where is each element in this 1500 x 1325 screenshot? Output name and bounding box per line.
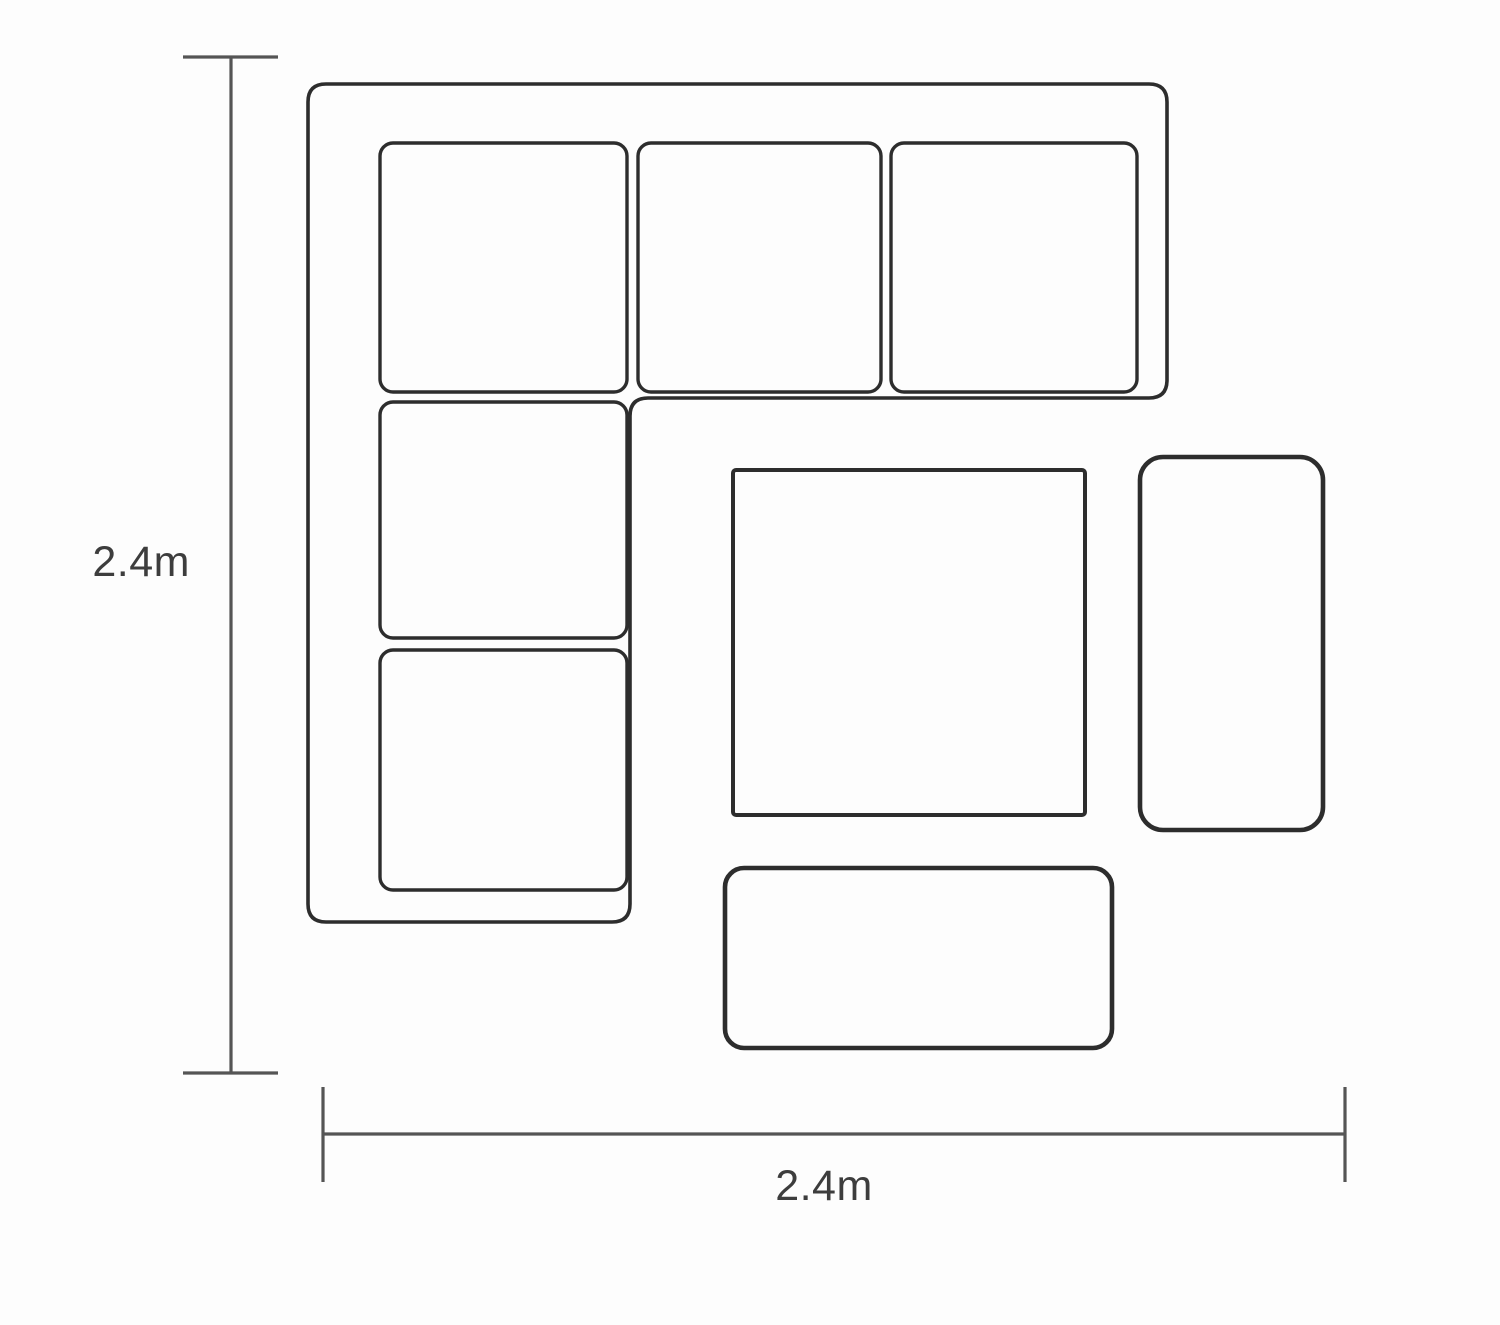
- horizontal-dimension-label: 2.4m: [724, 1165, 924, 1208]
- vertical-dimension: [183, 57, 278, 1073]
- diagram-canvas: [0, 0, 1500, 1325]
- seat-cushion-left-middle: [380, 402, 627, 638]
- side-bench: [1140, 457, 1323, 830]
- seat-cushion-corner: [380, 143, 627, 392]
- sofa-dimension-diagram: 2.4m 2.4m: [0, 0, 1500, 1325]
- front-bench: [725, 868, 1112, 1048]
- table: [733, 470, 1085, 815]
- seat-cushion-left-bottom: [380, 650, 627, 890]
- seat-cushion-top-middle: [638, 143, 881, 392]
- seat-cushion-top-right: [891, 143, 1137, 392]
- vertical-dimension-label: 2.4m: [60, 541, 190, 584]
- corner-sofa-outline: [308, 84, 1167, 922]
